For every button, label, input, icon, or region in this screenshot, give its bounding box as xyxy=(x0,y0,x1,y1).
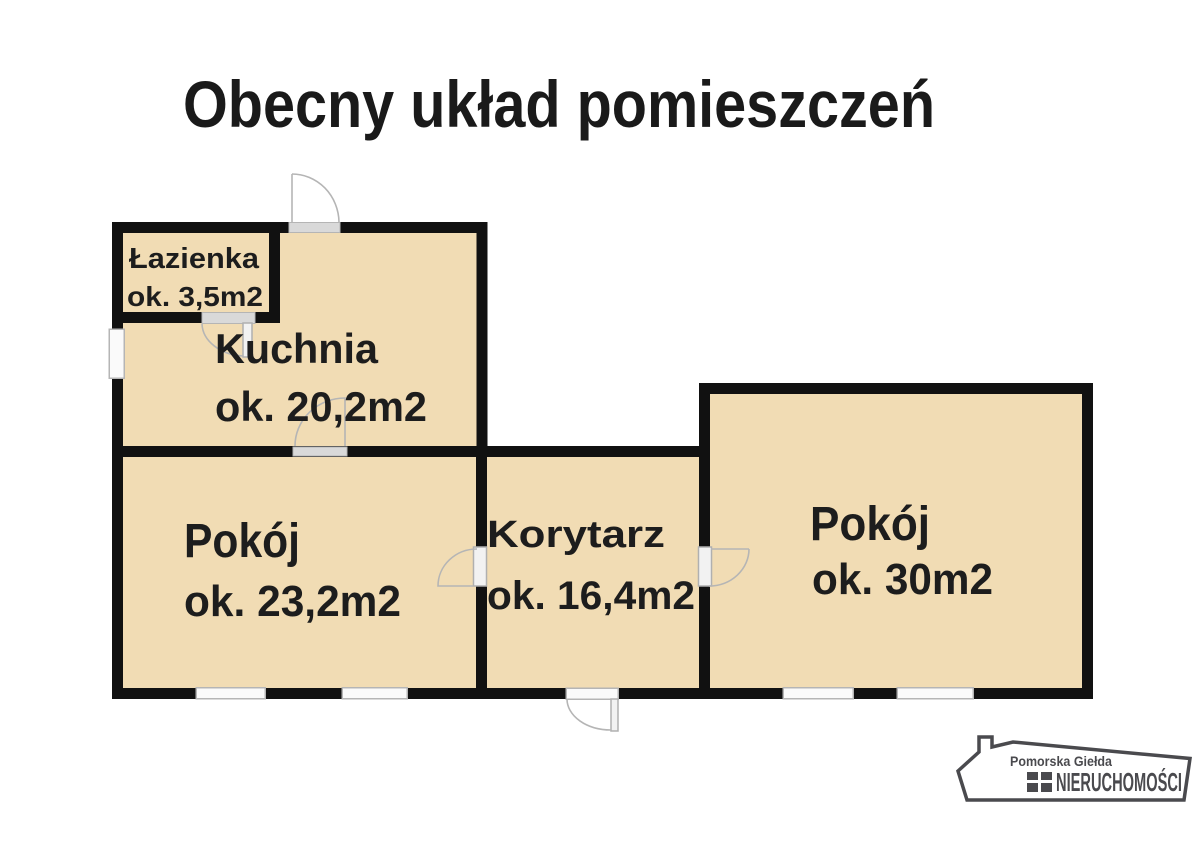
door-gap xyxy=(289,223,340,233)
window-room-left-1 xyxy=(196,688,265,699)
door-leaf xyxy=(699,547,712,586)
door-gap xyxy=(202,313,255,324)
room-right-area: ok. 30m2 xyxy=(812,555,993,604)
floor-plan-canvas: Obecny układ pomieszczeń xyxy=(0,0,1200,848)
door-swing-arc xyxy=(292,174,339,222)
kitchen-name: Kuchnia xyxy=(215,325,379,372)
window-kitchen-left xyxy=(109,329,124,378)
door-leaf xyxy=(474,547,487,586)
door-main-entrance xyxy=(566,688,618,731)
door-swing-arc xyxy=(567,699,611,730)
page-title: Obecny układ pomieszczeń xyxy=(183,67,935,141)
bathroom-name: Łazienka xyxy=(129,243,260,275)
door-leaf xyxy=(611,699,618,731)
window-room-left-2 xyxy=(342,688,407,699)
door-kitchen-entrance xyxy=(289,174,340,233)
corridor-name: Korytarz xyxy=(487,514,665,556)
window-room-right-2 xyxy=(897,688,973,699)
room-left xyxy=(118,452,483,694)
kitchen-area: ok. 20,2m2 xyxy=(215,383,427,430)
corridor-area: ok. 16,4m2 xyxy=(487,574,695,618)
room-right-name: Pokój xyxy=(810,498,930,551)
logo-line2: NIERUCHOMOŚCI xyxy=(1056,767,1182,797)
room-corridor xyxy=(482,452,705,694)
room-left-area: ok. 23,2m2 xyxy=(184,577,401,626)
window-room-right-1 xyxy=(783,688,853,699)
bathroom-area: ok. 3,5m2 xyxy=(127,281,263,312)
room-left-name: Pokój xyxy=(184,515,300,568)
door-gap xyxy=(566,688,618,699)
agency-logo: Pomorska Giełda NIERUCHOMOŚCI xyxy=(958,737,1190,800)
floor-plan: Łazienka ok. 3,5m2 Kuchnia ok. 20,2m2 Po… xyxy=(109,174,1088,731)
door-gap xyxy=(293,447,347,456)
